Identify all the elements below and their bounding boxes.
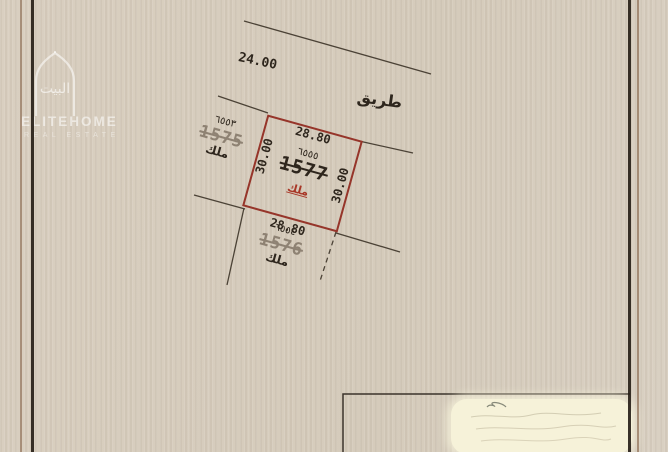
watermark-arabic-logo-text: البيت	[40, 81, 70, 97]
neighbor-parcel-1575: ٦٥٥٣ 1575 ملك	[183, 108, 258, 167]
road-name-label: طريق	[356, 87, 404, 112]
frame-line-right-inner	[628, 0, 631, 452]
survey-map-scan: 28.80 ٦٥٥٥ 1577 ملك 28.80 30.00 30.00 ٦٥…	[0, 0, 668, 452]
frame-line-left-inner	[31, 0, 34, 452]
plot-1577-outline: 28.80 ٦٥٥٥ 1577 ملك 28.80 30.00 30.00	[242, 114, 363, 232]
frame-line-right-outer	[637, 0, 639, 452]
neighbor-parcel-1579-number: 1579	[12, 0, 657, 118]
road-width-dimension: 24.00	[237, 50, 278, 73]
boundary-line-1576-1579	[336, 233, 400, 252]
faint-handwriting-marks	[451, 399, 632, 452]
watermark-brand-name: ELITEHOME	[21, 114, 118, 129]
watermark-tagline: REAL ESTATE	[24, 132, 120, 139]
redacted-stamp-area	[451, 399, 632, 452]
mosque-arch-icon: البيت	[31, 51, 79, 117]
frame-line-left-outer	[20, 0, 22, 452]
road-lower-edge-right-line	[359, 141, 413, 153]
boundary-line-1575-1576	[194, 195, 245, 209]
road-lower-edge-left-line	[218, 96, 268, 113]
